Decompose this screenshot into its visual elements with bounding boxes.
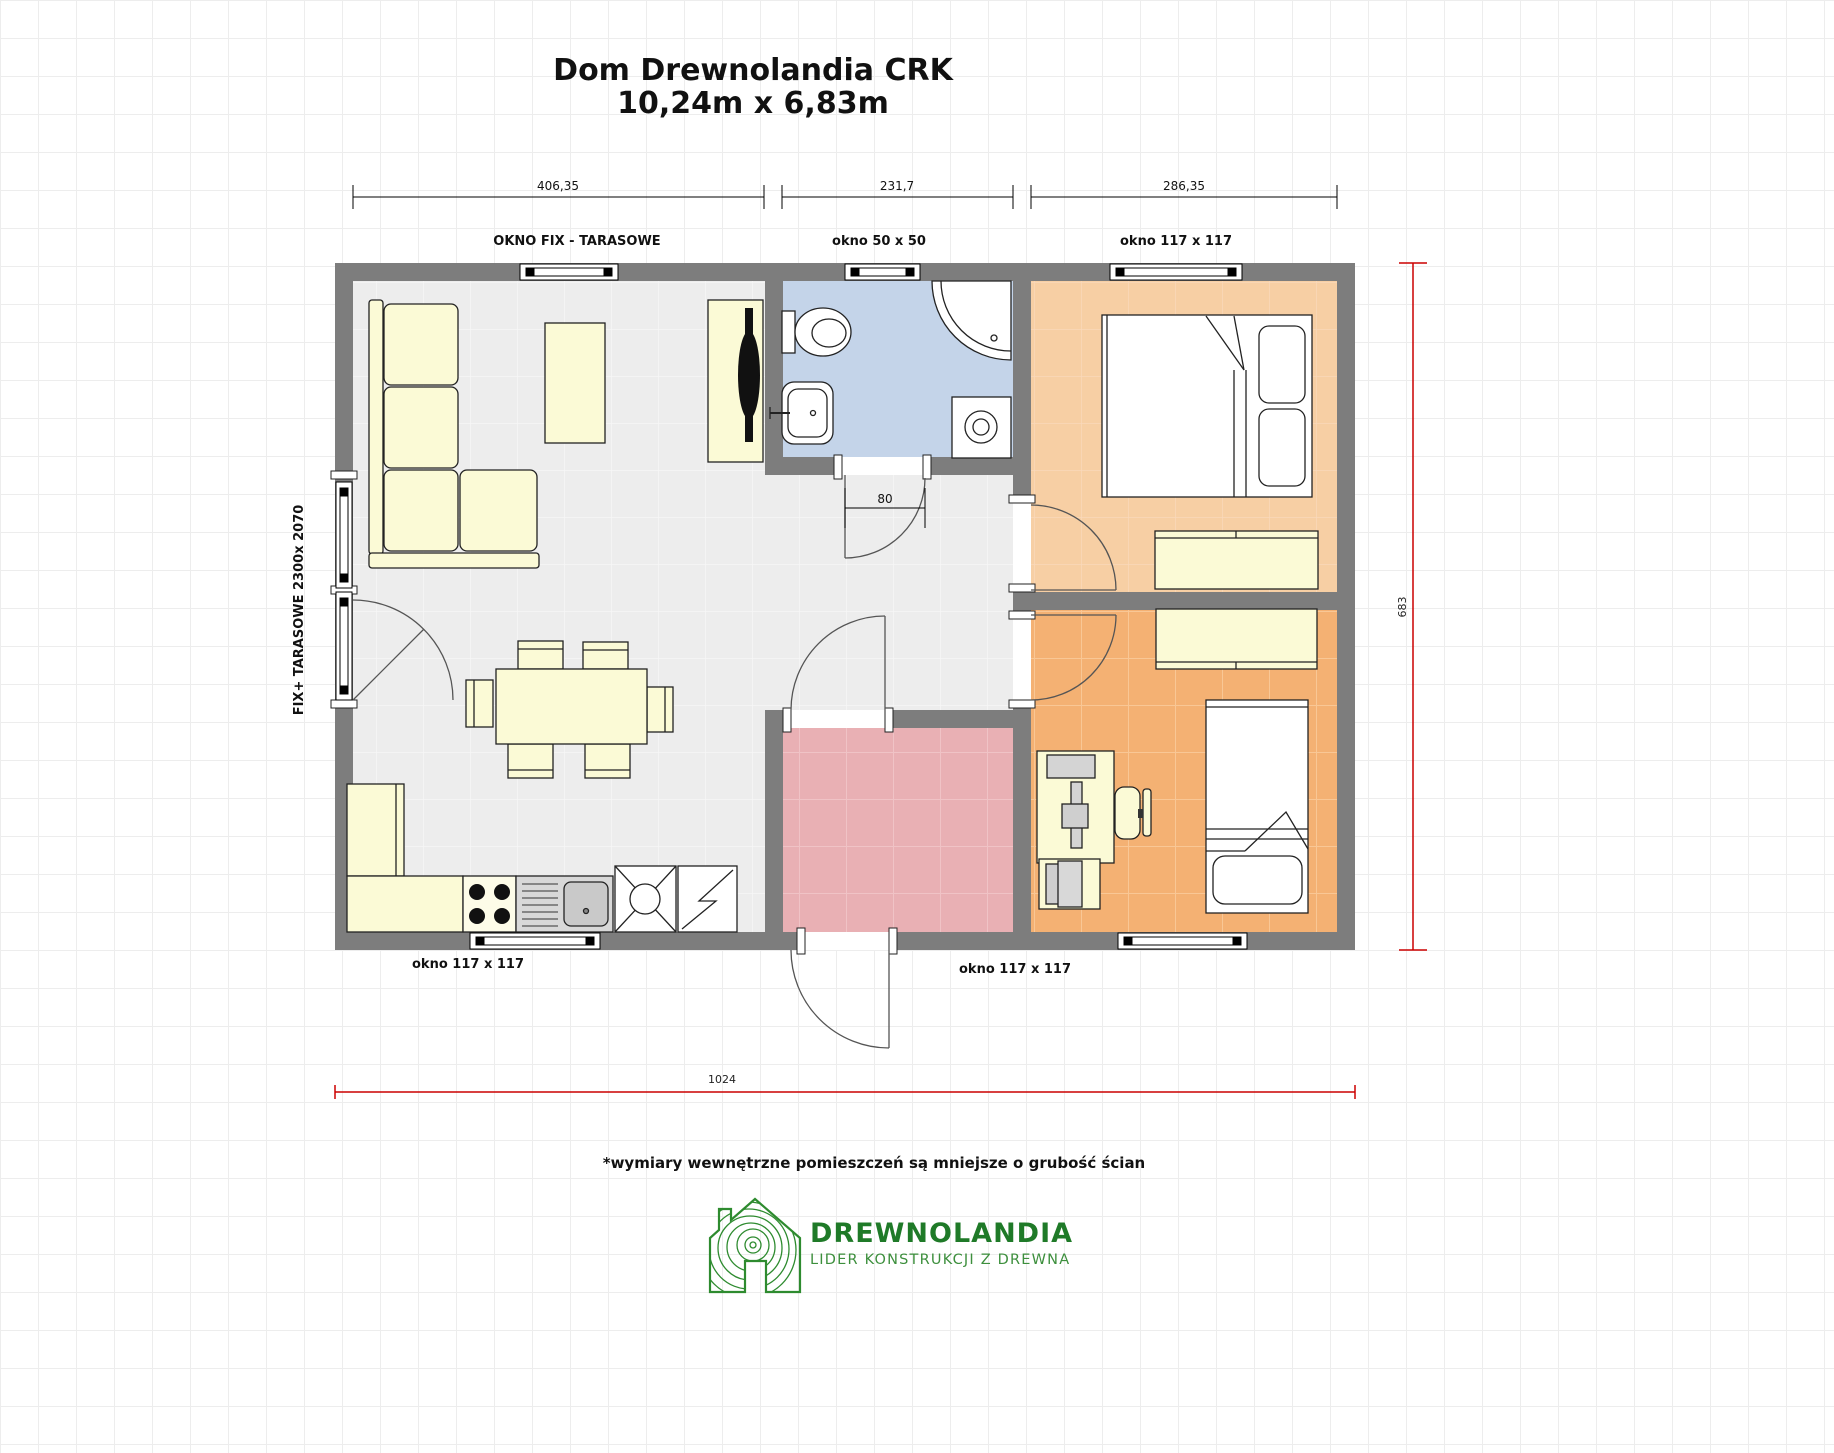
toilet-icon xyxy=(782,308,851,356)
label-window-top-right: okno 117 x 117 xyxy=(1120,234,1232,249)
dim-bedroom-width: 286,35 xyxy=(1163,179,1205,193)
dim-middle-width: 231,7 xyxy=(880,179,914,193)
dining-table xyxy=(496,669,647,744)
appliance-washer-icon xyxy=(615,866,676,932)
dining-chair xyxy=(585,744,630,778)
dining-chair xyxy=(508,744,553,778)
kitchen-tall-cabinet xyxy=(347,784,404,876)
window-bathroom-icon xyxy=(845,264,920,280)
label-window-top-middle: okno 50 x 50 xyxy=(832,234,926,249)
floor-plan-page: 406,35 231,7 286,35 80 683 1024 Dom Drew… xyxy=(0,0,1834,1453)
logo-name: DREWNOLANDIA xyxy=(810,1218,1073,1249)
label-window-bottom-right: okno 117 x 117 xyxy=(959,962,1071,977)
label-window-top-left: OKNO FIX - TARASOWE xyxy=(493,234,660,249)
washing-machine-icon xyxy=(952,397,1011,458)
wall-bedroom-divider xyxy=(1013,592,1337,610)
dim-bath-door-width: 80 xyxy=(877,492,892,506)
window-bedroom2-icon xyxy=(1118,933,1247,949)
wall-vestibule-left xyxy=(765,710,783,932)
dining-chair xyxy=(583,642,628,669)
room-vestibule xyxy=(783,728,1013,932)
pc-cabinet xyxy=(1039,859,1100,909)
logo: DREWNOLANDIA LIDER KONSTRUKCJI Z DREWNA xyxy=(700,1199,1073,1298)
window-bedroom1-icon xyxy=(1110,264,1242,280)
label-window-bottom-left: okno 117 x 117 xyxy=(412,957,524,972)
dim-living-width: 406,35 xyxy=(537,179,579,193)
window-terrace-lower-icon xyxy=(336,592,352,700)
wardrobe xyxy=(1156,609,1317,669)
dresser xyxy=(1155,531,1318,589)
wall-right xyxy=(1337,263,1355,950)
desk xyxy=(1037,751,1114,863)
window-terrace-upper-icon xyxy=(336,482,352,588)
appliance-fridge-icon xyxy=(678,866,737,932)
dining-chair xyxy=(518,641,563,669)
wall-bathroom-left xyxy=(765,281,783,475)
floor-plan-drawing: 406,35 231,7 286,35 80 683 1024 Dom Drew… xyxy=(0,0,1834,1453)
window-living-top-icon xyxy=(520,264,618,280)
dining-chair xyxy=(647,687,673,732)
monitor-icon xyxy=(1047,755,1095,778)
coffee-table xyxy=(545,323,605,443)
window-kitchen-icon xyxy=(470,933,600,949)
single-bed xyxy=(1206,700,1308,913)
tv-stand xyxy=(708,300,763,462)
logo-house-icon xyxy=(700,1199,800,1298)
door-entry xyxy=(791,950,889,1048)
page-subtitle: 10,24m x 6,83m xyxy=(617,86,889,121)
kitchen-counter xyxy=(347,876,463,932)
logo-tagline: LIDER KONSTRUKCJI Z DREWNA xyxy=(810,1252,1070,1268)
office-chair xyxy=(1115,787,1151,839)
double-bed xyxy=(1102,315,1312,497)
dining-chair xyxy=(466,680,493,727)
dimension-width-total xyxy=(335,1085,1355,1099)
kitchen-sink-icon xyxy=(516,876,613,932)
page-title: Dom Drewnolandia CRK xyxy=(553,53,954,88)
dim-height-total: 683 xyxy=(1396,597,1409,618)
footnote: *wymiary wewnętrzne pomieszczeń są mniej… xyxy=(603,1154,1146,1172)
stove-icon xyxy=(463,876,516,932)
label-window-left-side: FIX+ TARASOWE 2300x 2070 xyxy=(292,505,307,716)
dim-width-total: 1024 xyxy=(708,1073,736,1086)
